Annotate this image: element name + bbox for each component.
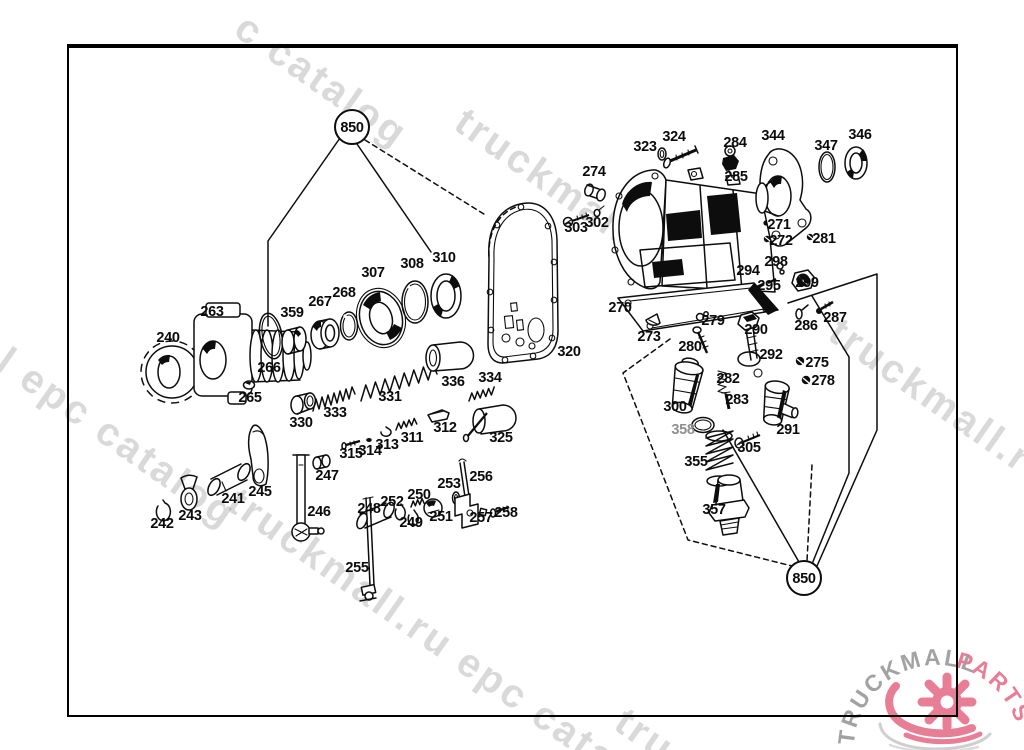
part-number-290: 290 <box>744 322 768 338</box>
group-marker-label: 850 <box>792 571 816 587</box>
logo-gear-icon <box>880 677 990 750</box>
part-number-346: 346 <box>848 127 872 143</box>
part-265-plug <box>244 381 255 389</box>
part-324-screw <box>662 146 698 169</box>
part-number-295: 295 <box>757 278 781 294</box>
part-number-272: 272 <box>769 233 793 249</box>
part-number-281: 281 <box>812 231 836 247</box>
part-number-359: 359 <box>280 305 304 321</box>
group-marker-850: 850 <box>335 110 369 144</box>
part-number-325: 325 <box>489 430 513 446</box>
part-number-248: 248 <box>357 501 381 517</box>
part-number-242: 242 <box>150 516 174 532</box>
part-number-333: 333 <box>323 405 347 421</box>
part-314-pin <box>366 438 372 442</box>
part-number-283: 283 <box>725 392 749 408</box>
part-number-357: 357 <box>702 502 726 518</box>
part-number-299: 299 <box>795 275 819 291</box>
part-number-323: 323 <box>633 139 657 155</box>
part-336-piston <box>426 342 474 371</box>
part-number-246: 246 <box>307 504 331 520</box>
part-number-355: 355 <box>684 454 708 470</box>
part-number-265: 265 <box>238 390 262 406</box>
part-number-258: 258 <box>494 505 518 521</box>
part-number-310: 310 <box>432 250 456 266</box>
part-number-278: 278 <box>811 373 835 389</box>
part-308-snap-ring <box>402 281 428 323</box>
part-291-valve <box>760 380 802 429</box>
part-311-spring <box>396 419 417 431</box>
parts-diagram-canvas: c catalogtruckmall.ru epl epc catalogtru… <box>0 0 1024 750</box>
part-270-housing <box>612 168 778 331</box>
part-number-311: 311 <box>401 430 424 446</box>
part-347-o-ring <box>819 152 835 182</box>
part-number-320: 320 <box>557 344 581 360</box>
part-number-324: 324 <box>662 129 686 145</box>
part-number-286: 286 <box>794 318 818 334</box>
part-number-298: 298 <box>764 254 788 270</box>
part-number-303: 303 <box>564 220 588 236</box>
part-number-330: 330 <box>289 415 313 431</box>
part-number-285: 285 <box>724 169 748 185</box>
part-number-358: 358 <box>671 422 695 438</box>
part-number-300: 300 <box>663 399 687 415</box>
part-number-243: 243 <box>178 508 202 524</box>
watermark-text: truckm <box>607 699 756 750</box>
part-number-312: 312 <box>433 420 457 436</box>
part-number-331: 331 <box>378 389 402 405</box>
part-number-271: 271 <box>767 217 791 233</box>
part-number-344: 344 <box>761 128 785 144</box>
part-number-282: 282 <box>716 371 740 387</box>
part-number-308: 308 <box>400 256 424 272</box>
part-number-240: 240 <box>156 330 180 346</box>
group-marker-850: 850 <box>787 561 821 595</box>
part-number-275: 275 <box>805 355 829 371</box>
part-number-347: 347 <box>814 138 838 154</box>
part-number-273: 273 <box>637 329 661 345</box>
part-334-spring <box>469 387 494 401</box>
part-number-251: 251 <box>429 509 453 525</box>
part-number-257: 257 <box>469 510 493 526</box>
part-247-bushing <box>313 455 330 469</box>
catalog-page: c catalogtruckmall.ru epl epc catalogtru… <box>0 0 1024 750</box>
part-number-334: 334 <box>478 370 502 386</box>
part-number-270: 270 <box>608 300 632 316</box>
part-358-o-ring <box>692 418 714 433</box>
watermark-text: c catalog <box>227 5 416 156</box>
part-number-263: 263 <box>200 304 224 320</box>
part-323-washer <box>658 148 666 160</box>
part-number-292: 292 <box>759 347 783 363</box>
part-286-stud <box>796 305 808 319</box>
part-number-287: 287 <box>823 310 847 326</box>
part-number-245: 245 <box>248 484 272 500</box>
part-number-250: 250 <box>407 487 431 503</box>
part-267-bearing-race <box>311 319 339 349</box>
part-number-241: 241 <box>221 491 245 507</box>
part-number-305: 305 <box>737 440 761 456</box>
part-number-294: 294 <box>736 263 760 279</box>
part-number-336: 336 <box>441 374 465 390</box>
group-marker-label: 850 <box>340 120 364 136</box>
part-268-snap-ring <box>341 312 358 340</box>
part-number-255: 255 <box>345 560 369 576</box>
part-320-gasket <box>487 203 558 363</box>
part-number-253: 253 <box>437 476 461 492</box>
part-number-267: 267 <box>308 294 332 310</box>
part-number-291: 291 <box>776 422 800 438</box>
part-275-bolt <box>796 357 804 365</box>
part-number-313: 313 <box>375 437 399 453</box>
part-number-266: 266 <box>257 360 281 376</box>
part-245-lever <box>249 425 269 486</box>
part-330-bushing <box>291 393 316 414</box>
part-number-280: 280 <box>678 339 702 355</box>
part-number-302: 302 <box>585 215 609 231</box>
part-number-274: 274 <box>582 164 606 180</box>
part-278-bolt <box>802 376 810 384</box>
part-number-284: 284 <box>723 135 747 151</box>
part-number-252: 252 <box>380 494 404 510</box>
part-number-268: 268 <box>332 285 356 301</box>
logo-truckmall-parts: TRUCKMALL PARTS <box>833 644 1024 750</box>
part-310-seal-ring <box>431 274 461 318</box>
part-number-247: 247 <box>315 468 339 484</box>
part-number-307: 307 <box>361 265 385 281</box>
part-number-249: 249 <box>399 515 423 531</box>
part-number-279: 279 <box>701 313 725 329</box>
part-346-seal <box>845 147 867 179</box>
part-number-256: 256 <box>469 469 493 485</box>
part-313-clip <box>381 427 391 436</box>
